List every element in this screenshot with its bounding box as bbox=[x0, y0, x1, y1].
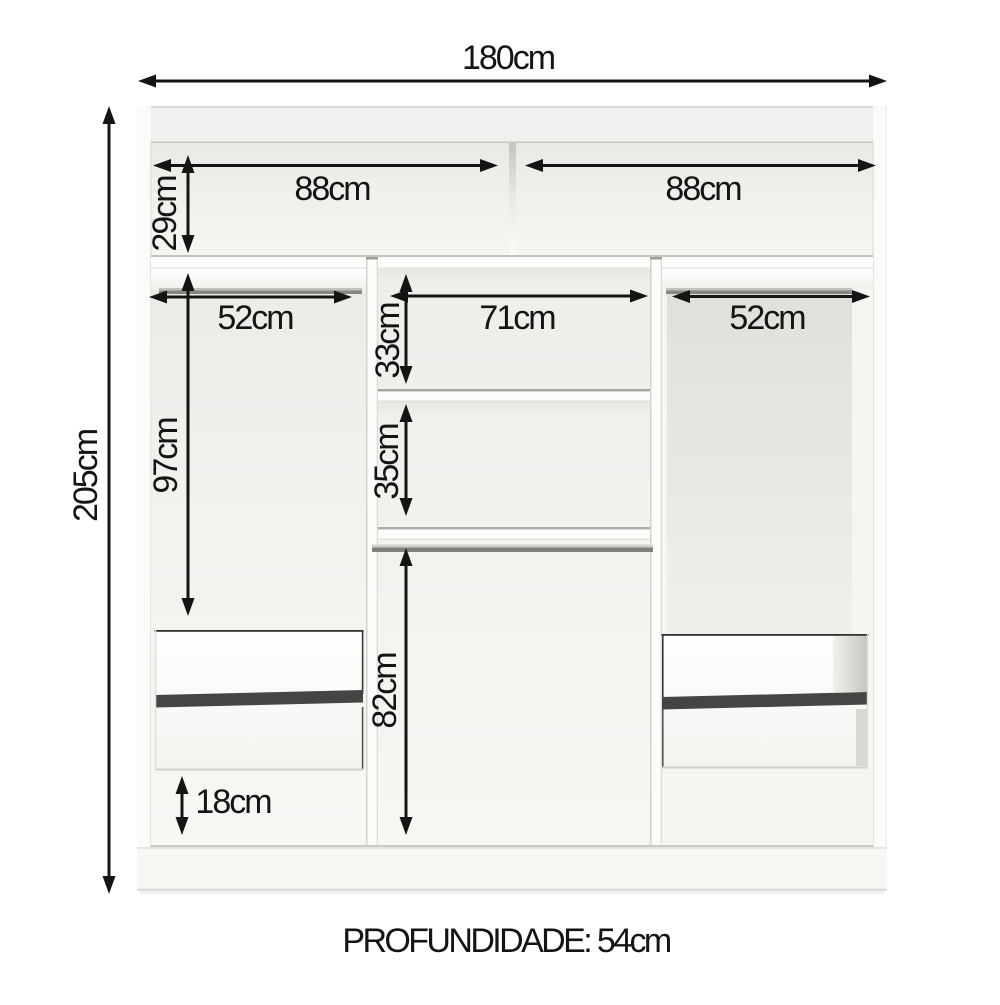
svg-text:97cm: 97cm bbox=[147, 418, 185, 494]
svg-text:18cm: 18cm bbox=[195, 783, 271, 821]
svg-text:35cm: 35cm bbox=[368, 424, 406, 500]
svg-text:82cm: 82cm bbox=[366, 653, 404, 729]
svg-text:88cm: 88cm bbox=[294, 170, 370, 208]
svg-text:71cm: 71cm bbox=[479, 299, 555, 337]
svg-text:PROFUNDIDADE: 54cm: PROFUNDIDADE: 54cm bbox=[342, 922, 671, 960]
svg-text:88cm: 88cm bbox=[665, 170, 741, 208]
svg-text:33cm: 33cm bbox=[369, 303, 407, 379]
svg-text:205cm: 205cm bbox=[67, 429, 105, 522]
svg-text:52cm: 52cm bbox=[217, 299, 293, 337]
svg-text:180cm: 180cm bbox=[462, 39, 555, 77]
svg-text:52cm: 52cm bbox=[729, 299, 805, 337]
svg-text:29cm: 29cm bbox=[146, 176, 184, 252]
